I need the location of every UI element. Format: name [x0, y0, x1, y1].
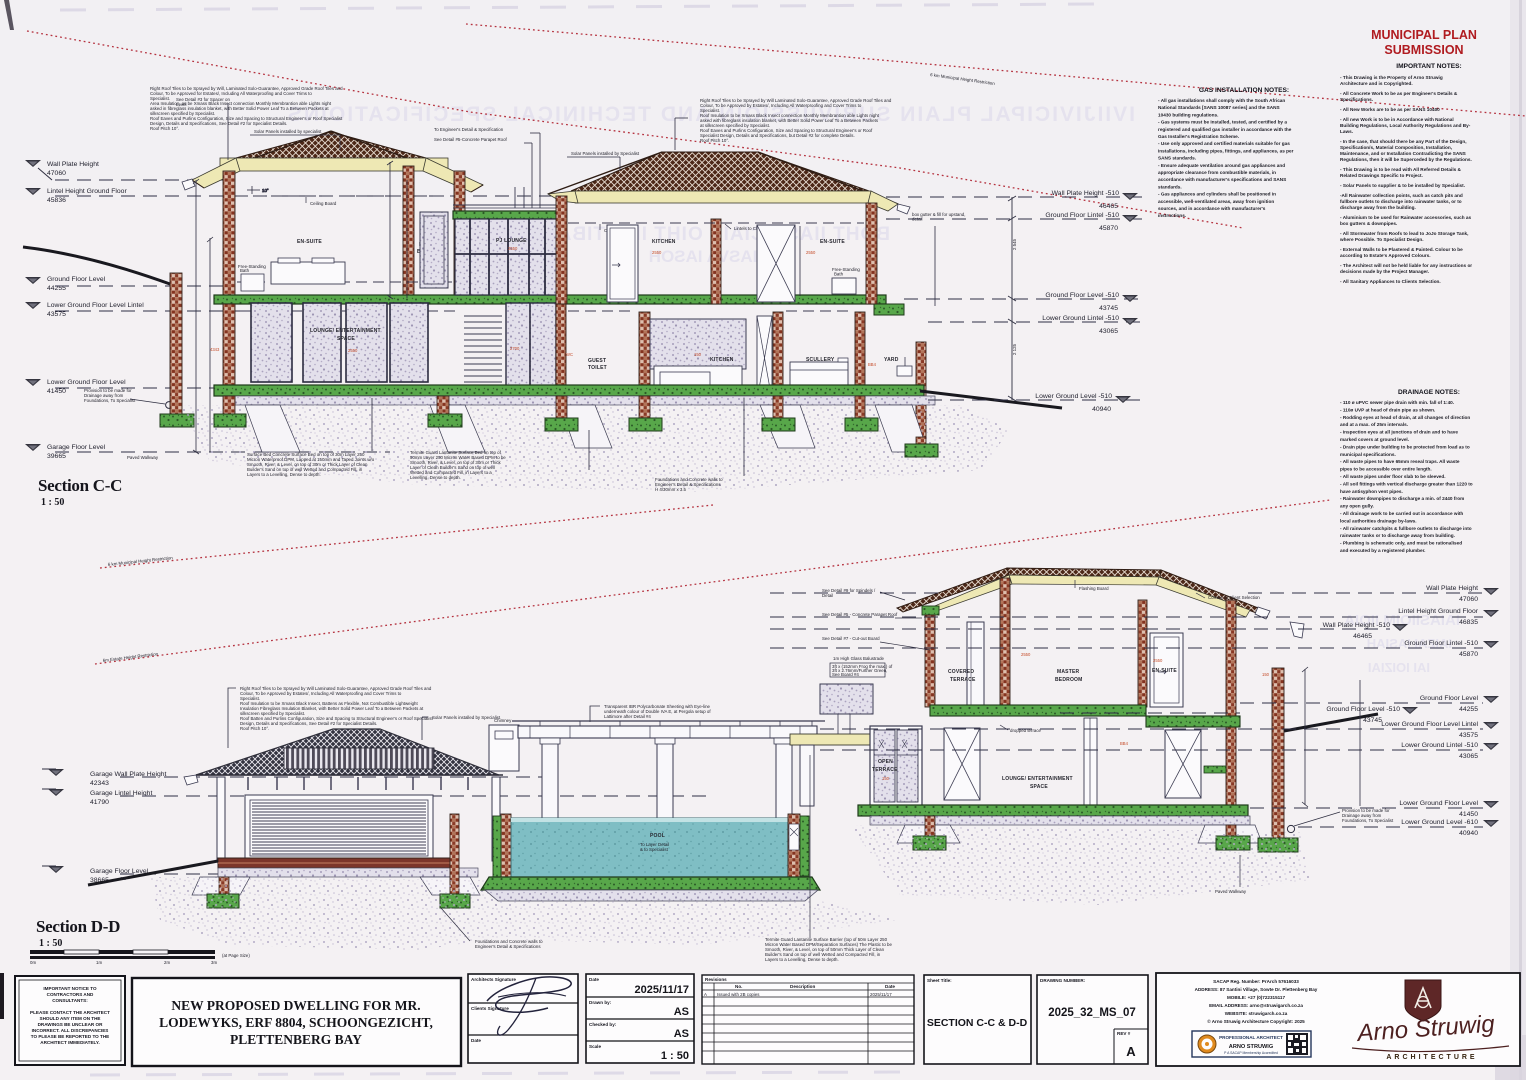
svg-text:Garage Floor Level: Garage Floor Level: [47, 444, 106, 451]
svg-text:- All New Works are to be as p: - All New Works are to be as per SANS 10…: [1340, 107, 1440, 112]
svg-text:Architecture and is Copyrighte: Architecture and is Copyrighted.: [1340, 81, 1413, 86]
svg-text:Levelling, Dense to depth.: Levelling, Dense to depth.: [410, 475, 461, 480]
svg-text:- Inspection eyes at all junct: - Inspection eyes at all junctions of dr…: [1340, 430, 1458, 435]
svg-text:installations, including pipes: installations, including pipes, fittings…: [1158, 148, 1294, 153]
svg-text:- Gas appliances and cylinders: - Gas appliances and cylinders shall be …: [1158, 192, 1276, 197]
svg-text:Foundations, To Specialist: Foundations, To Specialist: [84, 398, 136, 403]
svg-text:2550: 2550: [1153, 658, 1163, 663]
svg-text:Solar Panels installed by Spec: Solar Panels installed by Specialist: [432, 715, 501, 720]
svg-text:Ground Floor Level -510: Ground Floor Level -510: [1326, 706, 1400, 713]
svg-text:43575: 43575: [47, 311, 66, 318]
svg-text:Sheet Title:: Sheet Title:: [927, 978, 952, 983]
svg-text:- 110ø UVP at head of drain pi: - 110ø UVP at head of drain pipe as show…: [1340, 407, 1435, 412]
svg-text:decisions made by the Project: decisions made by the Project Manager.: [1340, 269, 1429, 274]
svg-text:ARCHITECTURE: ARCHITECTURE: [1386, 1054, 1477, 1061]
svg-text:-All Rainwater collection poin: -All Rainwater collection points, such a…: [1340, 193, 1463, 198]
svg-text:46835: 46835: [1459, 619, 1478, 626]
svg-text:- Ensure adequate ventilation: - Ensure adequate ventilation around gas…: [1158, 163, 1285, 168]
svg-text:REV #: REV #: [1117, 1031, 1131, 1036]
svg-text:A: A: [1126, 1044, 1136, 1059]
svg-text:Cornice to Client Selection: Cornice to Client Selection: [1208, 595, 1260, 600]
svg-text:150: 150: [882, 776, 890, 781]
svg-text:2550: 2550: [348, 348, 358, 353]
svg-text:150: 150: [694, 352, 702, 357]
svg-text:ARNO STRUWIG: ARNO STRUWIG: [1229, 1044, 1273, 1050]
svg-text:P A SACAP Membership Accredite: P A SACAP Membership Accredited: [1224, 1051, 1278, 1055]
svg-text:2550: 2550: [652, 250, 662, 255]
svg-text:Lower Ground Floor Level Linte: Lower Ground Floor Level Lintel: [47, 302, 144, 309]
svg-text:National Standards [SANS 10087: National Standards [SANS 10087 series] a…: [1158, 105, 1280, 110]
svg-text:10°: 10°: [262, 188, 269, 193]
svg-text:TERRACE: TERRACE: [872, 767, 898, 773]
svg-text:POOL: POOL: [650, 833, 665, 839]
svg-text:IMPORTANT NOTICE TO: IMPORTANT NOTICE TO: [43, 986, 97, 991]
svg-text:ADDRESS: 87 Santini Village, S: ADDRESS: 87 Santini Village, Sowte Dr. P…: [1195, 987, 1318, 992]
svg-text:fullbore outlets to discharge: fullbore outlets to discharge into rainw…: [1340, 199, 1462, 204]
svg-text:DRAINAGE NOTES:: DRAINAGE NOTES:: [1398, 389, 1460, 396]
svg-text:Bath: Bath: [834, 272, 844, 277]
svg-text:2550: 2550: [806, 250, 816, 255]
svg-text:See Board #4: See Board #4: [832, 672, 859, 677]
svg-text:SHOULD ANY ITEM ON THE: SHOULD ANY ITEM ON THE: [40, 1016, 101, 1021]
svg-text:42343: 42343: [90, 780, 109, 787]
svg-text:pipes to be accessible over en: pipes to be accessible over entire lengt…: [1340, 467, 1432, 472]
svg-text:- Rodding eyes at head of drai: - Rodding eyes at head of drain, at all …: [1340, 415, 1470, 420]
svg-text:and at a max. of 25m intervals: and at a max. of 25m intervals.: [1340, 422, 1408, 427]
svg-text:Level: Level: [176, 102, 187, 107]
svg-text:TERRACE: TERRACE: [950, 677, 976, 683]
svg-text:- All Sanitary Appliances to C: - All Sanitary Appliances to Clients Sel…: [1340, 279, 1441, 284]
svg-text:43575: 43575: [1459, 732, 1478, 739]
svg-text:- All Stormwater from Roofs to: - All Stormwater from Roofs to lead to J…: [1340, 231, 1468, 236]
svg-text:Revisions: Revisions: [705, 977, 727, 982]
svg-text:H 4/30mm x 3.5: H 4/30mm x 3.5: [655, 487, 687, 492]
svg-text:Checked by:: Checked by:: [589, 1022, 617, 1027]
svg-text:according to Estate's Approved: according to Estate's Approved Colours.: [1340, 253, 1431, 258]
svg-text:1m High Glass Balustrade: 1m High Glass Balustrade: [833, 656, 885, 661]
svg-text:Solar Panels installed by spec: Solar Panels installed by specialist: [254, 129, 322, 134]
svg-text:BEDROOM: BEDROOM: [1055, 677, 1083, 683]
svg-text:1m: 1m: [96, 960, 102, 965]
svg-text:Scale: Scale: [589, 1044, 601, 1049]
svg-text:- Drain pipe under building to: - Drain pipe under building to be protec…: [1340, 444, 1470, 449]
svg-text:- All rainwater catchpits & fu: - All rainwater catchpits & fullbore out…: [1340, 526, 1472, 531]
svg-text:Foundations, To Specialist: Foundations, To Specialist: [1342, 818, 1394, 823]
svg-text:EN-SUITE: EN-SUITE: [820, 239, 845, 245]
svg-text:Layers to a Levelling, Dense t: Layers to a Levelling, Dense to depth.: [247, 472, 321, 477]
svg-text:Lattimore after Detail #4: Lattimore after Detail #4: [604, 714, 651, 719]
svg-text:local authorities drainage by-: local authorities drainage by-laws.: [1340, 518, 1417, 523]
svg-text:- All Concrete Work to be as p: - All Concrete Work to be as per Enginee…: [1340, 91, 1458, 96]
svg-text:- Use only approved and certif: - Use only approved and certified materi…: [1158, 141, 1290, 146]
svg-text:41450: 41450: [1459, 811, 1478, 818]
svg-text:Section D-D: Section D-D: [36, 917, 120, 936]
svg-text:- All waste pipes to have 65mm: - All waste pipes to have 65mm reseal tr…: [1340, 459, 1460, 464]
svg-text:- This Drawing is the Property: - This Drawing is the Property of Arno S…: [1340, 75, 1443, 80]
svg-text:- All gas installations shall: - All gas installations shall comply wit…: [1158, 98, 1285, 103]
svg-text:Wall Plate Height: Wall Plate Height: [1426, 585, 1478, 592]
svg-text:Wall Plate Height: Wall Plate Height: [47, 161, 99, 168]
svg-text:GUEST: GUEST: [588, 358, 606, 364]
svg-text:A: A: [704, 992, 707, 997]
svg-text:Architects Signature: Architects Signature: [471, 977, 516, 982]
svg-text:- All waste pipes under floor: - All waste pipes under floor slab to be…: [1340, 474, 1446, 479]
svg-text:OPEN: OPEN: [878, 759, 893, 765]
svg-text:Ceiling Board: Ceiling Board: [310, 201, 337, 206]
svg-text:(at Page Size): (at Page Size): [222, 953, 250, 958]
svg-text:2m: 2m: [164, 960, 170, 965]
svg-text:instructions.: instructions.: [1158, 213, 1186, 218]
svg-text:EN-SUITE: EN-SUITE: [297, 239, 322, 245]
svg-text:SECTION C-C & D-D: SECTION C-C & D-D: [927, 1017, 1028, 1029]
svg-text:44255: 44255: [1459, 706, 1478, 713]
svg-text:Specification/s, Material Comp: Specification/s, Material Composition, I…: [1340, 145, 1452, 150]
svg-text:No.: No.: [735, 984, 742, 989]
svg-text:& to Specialist: & to Specialist: [640, 847, 669, 852]
svg-text:Ground Floor Lintel -510: Ground Floor Lintel -510: [1045, 212, 1119, 219]
svg-text:1 : 50: 1 : 50: [661, 1050, 689, 1062]
svg-text:Roof Pitch 10°.: Roof Pitch 10°.: [150, 126, 179, 131]
svg-text:4343: 4343: [210, 347, 220, 352]
svg-text:SANS standards.: SANS standards.: [1158, 156, 1196, 161]
svg-text:150: 150: [1262, 672, 1270, 677]
svg-text:box gutters & downpipes.: box gutters & downpipes.: [1340, 221, 1397, 226]
svg-text:2 545: 2 545: [1012, 238, 1017, 250]
svg-text:41450: 41450: [47, 388, 66, 395]
svg-text:Lower Ground Level -510: Lower Ground Level -510: [1035, 393, 1112, 400]
svg-text:Ground Floor Lintel -510: Ground Floor Lintel -510: [1404, 640, 1478, 647]
svg-text:- All soil fittings with verti: - All soil fittings with vertical discha…: [1340, 481, 1473, 486]
svg-text:- The Architect will not be he: - The Architect will not be held liable …: [1340, 263, 1472, 268]
svg-text:Date: Date: [885, 984, 895, 989]
svg-text:© Arno Struwig Architecture Co: © Arno Struwig Architecture Copyright: 2…: [1207, 1018, 1305, 1024]
svg-text:Colour, To be Approved for Est: Colour, To be Approved for Estates/, Inc…: [150, 91, 312, 96]
svg-text:- Solar Panels to supplier & t: - Solar Panels to supplier & to be insta…: [1340, 183, 1465, 188]
svg-text:where Possible. To Specialist: where Possible. To Specialist Design.: [1339, 237, 1424, 242]
svg-text:Lower Ground Level -610: Lower Ground Level -610: [1401, 819, 1478, 826]
svg-text:- Aluminium to be used for Rai: - Aluminium to be used for Rainwater acc…: [1340, 215, 1472, 220]
svg-text:AS: AS: [674, 1006, 689, 1018]
svg-text:Date: Date: [589, 977, 599, 982]
svg-text:- 110 ø uPVC sewer pipe drain: - 110 ø uPVC sewer pipe drain with min. …: [1340, 400, 1454, 405]
svg-text:CONSULTANTS:: CONSULTANTS:: [52, 998, 88, 1003]
svg-text:IMPORTANT NOTES:: IMPORTANT NOTES:: [1396, 63, 1461, 70]
svg-text:Related Drawings Specific to P: Related Drawings Specific to Project.: [1340, 173, 1423, 178]
svg-text:2025/11/17: 2025/11/17: [635, 984, 689, 996]
svg-text:Chimney: Chimney: [494, 718, 512, 723]
svg-text:45870: 45870: [1099, 225, 1118, 232]
svg-text:Lower Ground Lintel -510: Lower Ground Lintel -510: [1042, 315, 1119, 322]
svg-text:marked covers at ground level.: marked covers at ground level.: [1340, 437, 1409, 442]
svg-text:IAI IOIZIAI: IAI IOIZIAI: [1368, 660, 1430, 675]
svg-text:EN-SUITE: EN-SUITE: [1152, 668, 1177, 674]
svg-text:INCORRECT. ALL DISCREPANCIES: INCORRECT. ALL DISCREPANCIES: [32, 1028, 109, 1033]
svg-text:LOUNGE/ ENTERTAINMENT: LOUNGE/ ENTERTAINMENT: [1002, 776, 1073, 782]
svg-text:registered and qualified gas i: registered and qualified gas installer i…: [1158, 127, 1292, 132]
svg-text:Building Regulations, Local Au: Building Regulations, Local Authority Re…: [1340, 123, 1471, 128]
svg-text:Laws.: Laws.: [1340, 129, 1353, 134]
svg-text:WEBSITE: struwigarch.co.za: WEBSITE: struwigarch.co.za: [1225, 1011, 1288, 1016]
svg-text:- Gas systems must be installe: - Gas systems must be installed, tested,…: [1158, 120, 1287, 125]
svg-text:40940: 40940: [1092, 406, 1111, 413]
svg-text:accessible, well-ventilated ar: accessible, well-ventilated areas, away …: [1158, 199, 1274, 204]
svg-text:2025/11/17: 2025/11/17: [870, 992, 892, 997]
svg-text:discharge away from the buildi: discharge away from the building.: [1340, 205, 1416, 210]
svg-text:45870: 45870: [1459, 651, 1478, 658]
svg-text:45836: 45836: [47, 197, 66, 204]
svg-text:Paved Walkway: Paved Walkway: [1215, 889, 1247, 894]
svg-text:have antisyphon vent pipes.: have antisyphon vent pipes.: [1340, 489, 1403, 494]
svg-text:- In the case, that should the: - In the case, that should there be any …: [1340, 139, 1467, 144]
svg-text:Ground Floor Level: Ground Floor Level: [1420, 695, 1479, 702]
svg-text:accordance with manufacturer's: accordance with manufacturer's specifica…: [1158, 177, 1286, 182]
svg-text:TO PLEASE BE REPORTED TO THE: TO PLEASE BE REPORTED TO THE: [31, 1034, 109, 1039]
svg-text:Maintenance, and or Installati: Maintenance, and or Installation Contrad…: [1340, 151, 1466, 156]
svg-text:KITCHEN: KITCHEN: [710, 357, 734, 363]
svg-text:Ground Floor Level: Ground Floor Level: [47, 276, 106, 283]
svg-text:WC: WC: [566, 352, 573, 357]
svg-text:Lintel Height Ground Floor: Lintel Height Ground Floor: [47, 188, 127, 195]
svg-text:Engineer's Detail & Specificat: Engineer's Detail & Specifications: [475, 944, 541, 949]
svg-text:43745: 43745: [1363, 717, 1382, 724]
svg-text:- All drainage work to be carr: - All drainage work to be carried out in…: [1340, 511, 1463, 516]
svg-text:0m: 0m: [30, 960, 36, 965]
svg-text:Date: Date: [471, 1038, 481, 1043]
svg-text:2 125: 2 125: [1012, 343, 1017, 355]
svg-text:COVERED: COVERED: [948, 669, 974, 675]
svg-text:MASTER: MASTER: [1057, 669, 1080, 675]
svg-text:and executed by a registered p: and executed by a registered plumber.: [1340, 548, 1425, 553]
svg-text:See Detail #5-Concrete Parapet: See Detail #5-Concrete Parapet Roof: [434, 137, 508, 142]
svg-text:Lintel Height Ground Floor: Lintel Height Ground Floor: [1398, 608, 1478, 615]
svg-text:Issued with 2B copies: Issued with 2B copies: [717, 992, 760, 997]
svg-text:Wall Plate Height -510: Wall Plate Height -510: [1323, 622, 1391, 629]
svg-text:- Rainwater downpipes to disch: - Rainwater downpipes to discharge a min…: [1340, 496, 1464, 501]
svg-text:Lower Ground Floor Level: Lower Ground Floor Level: [47, 379, 126, 386]
svg-text:Section C-C: Section C-C: [38, 476, 122, 495]
svg-text:10430 building regulations.: 10430 building regulations.: [1158, 112, 1218, 117]
svg-text:Wall Plate Height -510: Wall Plate Height -510: [1052, 190, 1120, 197]
svg-text:Ground Floor Level -510: Ground Floor Level -510: [1045, 292, 1119, 299]
svg-text:Lower Ground Floor Level: Lower Ground Floor Level: [1399, 800, 1478, 807]
svg-text:Lower Ground Lintel -510: Lower Ground Lintel -510: [1401, 742, 1478, 749]
svg-text:47060: 47060: [1459, 596, 1478, 603]
svg-text:appropriate clearance from com: appropriate clearance from combustible m…: [1158, 170, 1276, 175]
svg-text:PLEASE CONTACT THE ARCHITECT: PLEASE CONTACT THE ARCHITECT: [30, 1010, 110, 1015]
svg-text:See Detail #5 - Concrete Parap: See Detail #5 - Concrete Parapet Roof: [822, 612, 898, 617]
svg-text:46465: 46465: [1353, 633, 1372, 640]
svg-text:SPACE: SPACE: [1030, 784, 1048, 790]
svg-text:2700: 2700: [510, 346, 520, 351]
svg-text:SACAP Reg. Number: PrArch 5761: SACAP Reg. Number: PrArch 57616033: [1213, 979, 1299, 984]
svg-text:Detail: Detail: [822, 593, 833, 598]
svg-text:BB4: BB4: [1120, 741, 1129, 746]
svg-text:Regulations, then it will be S: Regulations, then it will be Superceded …: [1340, 157, 1472, 162]
svg-text:47060: 47060: [47, 170, 66, 177]
svg-text:NEW PROPOSED DWELLING FOR MR.: NEW PROPOSED DWELLING FOR MR.: [171, 998, 420, 1013]
svg-text:Specifications.: Specifications.: [1340, 97, 1373, 102]
svg-text:Colour, To be Approved by Esta: Colour, To be Approved by Estates/, Incl…: [240, 691, 402, 696]
svg-text:Layers to a Levelling, Dense t: Layers to a Levelling, Dense to depth.: [765, 957, 839, 962]
svg-text:Roof Pitch 10°.: Roof Pitch 10°.: [700, 138, 729, 143]
svg-text:LOUNGE/ ENTERTAINMENT: LOUNGE/ ENTERTAINMENT: [310, 328, 381, 334]
svg-text:43065: 43065: [1099, 328, 1118, 335]
svg-text:Description: Description: [790, 984, 815, 989]
svg-text:CONTRACTORS AND: CONTRACTORS AND: [47, 992, 94, 997]
svg-text:- External Walls to be Plaster: - External Walls to be Plastered & Paint…: [1340, 247, 1463, 252]
svg-text:43065: 43065: [1459, 753, 1478, 760]
svg-text:2550: 2550: [1021, 652, 1031, 657]
svg-text:KITCHEN: KITCHEN: [652, 239, 676, 245]
svg-text:2025_32_MS_07: 2025_32_MS_07: [1048, 1007, 1136, 1019]
svg-text:Lower Ground Floor Level Linte: Lower Ground Floor Level Lintel: [1381, 721, 1478, 728]
svg-text:YARD: YARD: [884, 357, 899, 363]
svg-text:Paved Walkway: Paved Walkway: [127, 455, 159, 460]
svg-text:municipal specifications.: municipal specifications.: [1340, 452, 1396, 457]
svg-text:ARCHITECT IMMEDIATELY.: ARCHITECT IMMEDIATELY.: [40, 1040, 99, 1045]
svg-text:2550: 2550: [508, 246, 518, 251]
svg-text:See Detail #7 - Cut-out Board: See Detail #7 - Cut-out Board: [822, 636, 880, 641]
svg-text:GAS INSTALLATION NOTES:: GAS INSTALLATION NOTES:: [1199, 87, 1289, 94]
svg-text:BB4: BB4: [868, 362, 877, 367]
svg-text:PJ LOUNGE: PJ LOUNGE: [496, 238, 527, 244]
svg-text:MUNICIPAL PLAN: MUNICIPAL PLAN: [1371, 28, 1477, 42]
svg-text:39665: 39665: [47, 453, 66, 460]
svg-text:PLETTENBERG BAY: PLETTENBERG BAY: [230, 1032, 362, 1047]
svg-text:- This Drawing is to be read w: - This Drawing is to be read with All Re…: [1340, 167, 1462, 172]
svg-text:sources, and in accordance wit: sources, and in accordance with manufact…: [1158, 206, 1266, 211]
svg-text:LODEWYKS, ERF 8804, SCHOONGEZI: LODEWYKS, ERF 8804, SCHOONGEZICHT,: [159, 1015, 433, 1030]
svg-text:46465: 46465: [1099, 203, 1118, 210]
svg-text:AS: AS: [674, 1028, 689, 1040]
svg-text:41790: 41790: [90, 799, 109, 806]
svg-text:MOBILE: +27 (0)722315117: MOBILE: +27 (0)722315117: [1227, 995, 1286, 1000]
svg-text:Flashing Board: Flashing Board: [1079, 586, 1109, 591]
svg-text:Colour, To be Approved by Esta: Colour, To be Approved by Estates/, Incl…: [700, 103, 862, 108]
svg-text:- All new Work is to be in Acc: - All new Work is to be in Accordance wi…: [1340, 117, 1454, 122]
svg-text:40940: 40940: [1459, 830, 1478, 837]
svg-text:PROFESSIONAL ARCHITECT: PROFESSIONAL ARCHITECT: [1219, 1035, 1283, 1040]
svg-text:3m: 3m: [211, 960, 217, 965]
svg-text:Bath: Bath: [240, 268, 250, 273]
svg-text:EMAIL ADDRESS: arno@struwigarc: EMAIL ADDRESS: arno@struwigarch.co.za: [1209, 1003, 1303, 1008]
svg-text:43745: 43745: [1099, 305, 1118, 312]
svg-text:1:8: 1:8: [120, 876, 127, 881]
svg-text:To Engineer's Detail & Specifi: To Engineer's Detail & Specification: [434, 127, 504, 132]
svg-text:rainwater tanks or to discharg: rainwater tanks or to discharge away fro…: [1340, 533, 1455, 538]
svg-text:DRAWINGS BE UNCLEAR OR: DRAWINGS BE UNCLEAR OR: [38, 1022, 104, 1027]
svg-text:Gas Installer's Registration S: Gas Installer's Registration Scheme.: [1158, 134, 1239, 139]
svg-text:1 : 50: 1 : 50: [41, 497, 64, 508]
svg-text:Drawn by:: Drawn by:: [589, 1000, 612, 1005]
svg-text:DRAWING NUMBER:: DRAWING NUMBER:: [1040, 978, 1086, 983]
svg-text:- Plumbing is schematic only,: - Plumbing is schematic only, and must b…: [1340, 541, 1462, 546]
svg-text:standards.: standards.: [1158, 184, 1182, 189]
svg-text:Roof Pitch 10°.: Roof Pitch 10°.: [240, 726, 269, 731]
svg-text:Solar Panels installed by Spec: Solar Panels installed by Specialist: [571, 151, 640, 156]
svg-text:SUBMISSION: SUBMISSION: [1384, 43, 1463, 57]
svg-text:SPACE: SPACE: [337, 336, 355, 342]
svg-text:1 : 50: 1 : 50: [39, 938, 62, 949]
svg-text:TOILET: TOILET: [588, 365, 607, 371]
svg-text:any open gully.: any open gully.: [1340, 504, 1374, 509]
